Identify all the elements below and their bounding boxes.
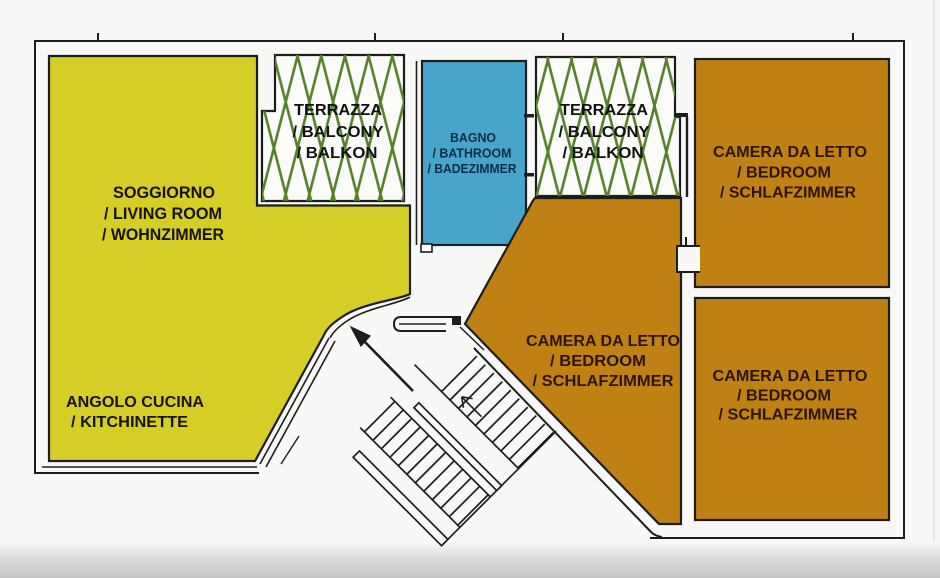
svg-text:/ BEDROOM: / BEDROOM [550,353,646,370]
svg-text:CAMERA DA LETTO: CAMERA DA LETTO [713,368,868,385]
svg-text:/ SCHLAFZIMMER: / SCHLAFZIMMER [533,373,674,390]
svg-text:SOGGIORNO: SOGGIORNO [113,184,215,202]
svg-text:/ WOHNZIMMER: / WOHNZIMMER [102,226,224,244]
svg-text:/ BALCONY: / BALCONY [293,124,385,141]
svg-text:/ BEDROOM: / BEDROOM [737,165,831,182]
svg-text:/ BALCONY: / BALCONY [559,124,651,141]
svg-text:CAMERA DA LETTO: CAMERA DA LETTO [526,333,680,350]
svg-text:/ SCHLAFZIMMER: / SCHLAFZIMMER [719,407,858,424]
svg-text:/ BATHROOM: / BATHROOM [433,147,512,161]
svg-text:/ BADEZIMMER: / BADEZIMMER [428,162,517,176]
svg-text:BAGNO: BAGNO [450,131,496,145]
svg-text:/ BALKON: / BALKON [297,145,378,162]
svg-text:TERRAZZA: TERRAZZA [560,102,648,119]
svg-text:/ BALKON: / BALKON [563,145,644,162]
svg-text:/ KITCHINETTE: / KITCHINETTE [71,414,188,431]
svg-text:/ SCHLAFZIMMER: / SCHLAFZIMMER [720,185,856,202]
svg-text:CAMERA DA LETTO: CAMERA DA LETTO [713,144,867,161]
svg-text:/ LIVING ROOM: / LIVING ROOM [104,205,222,223]
svg-text:/ BEDROOM: / BEDROOM [737,388,831,405]
svg-text:ANGOLO CUCINA: ANGOLO CUCINA [66,394,204,411]
svg-text:TERRAZZA: TERRAZZA [294,102,382,119]
